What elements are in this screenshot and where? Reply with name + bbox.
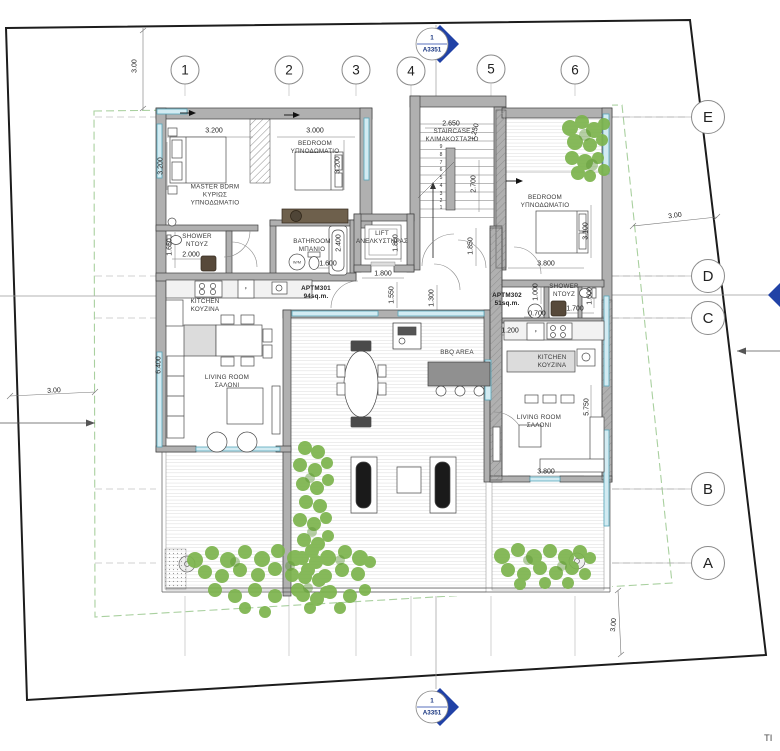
section-marker-top-graphic <box>416 25 459 63</box>
section-marker-bottom-number: 1 <box>430 698 434 705</box>
section-marker-bottom-graphic <box>416 688 459 726</box>
row-leaders <box>612 117 692 563</box>
section-marker-right-edge <box>768 283 780 307</box>
titleblock-corner-text: TI <box>764 733 772 744</box>
section-marker-bottom-sheet: A3351 <box>423 710 442 717</box>
section-marker-top-sheet: A3351 <box>423 47 442 54</box>
floor-plan-sheet: 3.2003.0003.2003.2002.0001.6501.6002.400… <box>0 0 780 751</box>
section-marker-top-number: 1 <box>430 35 434 42</box>
floor-plan-drawing <box>0 0 780 751</box>
